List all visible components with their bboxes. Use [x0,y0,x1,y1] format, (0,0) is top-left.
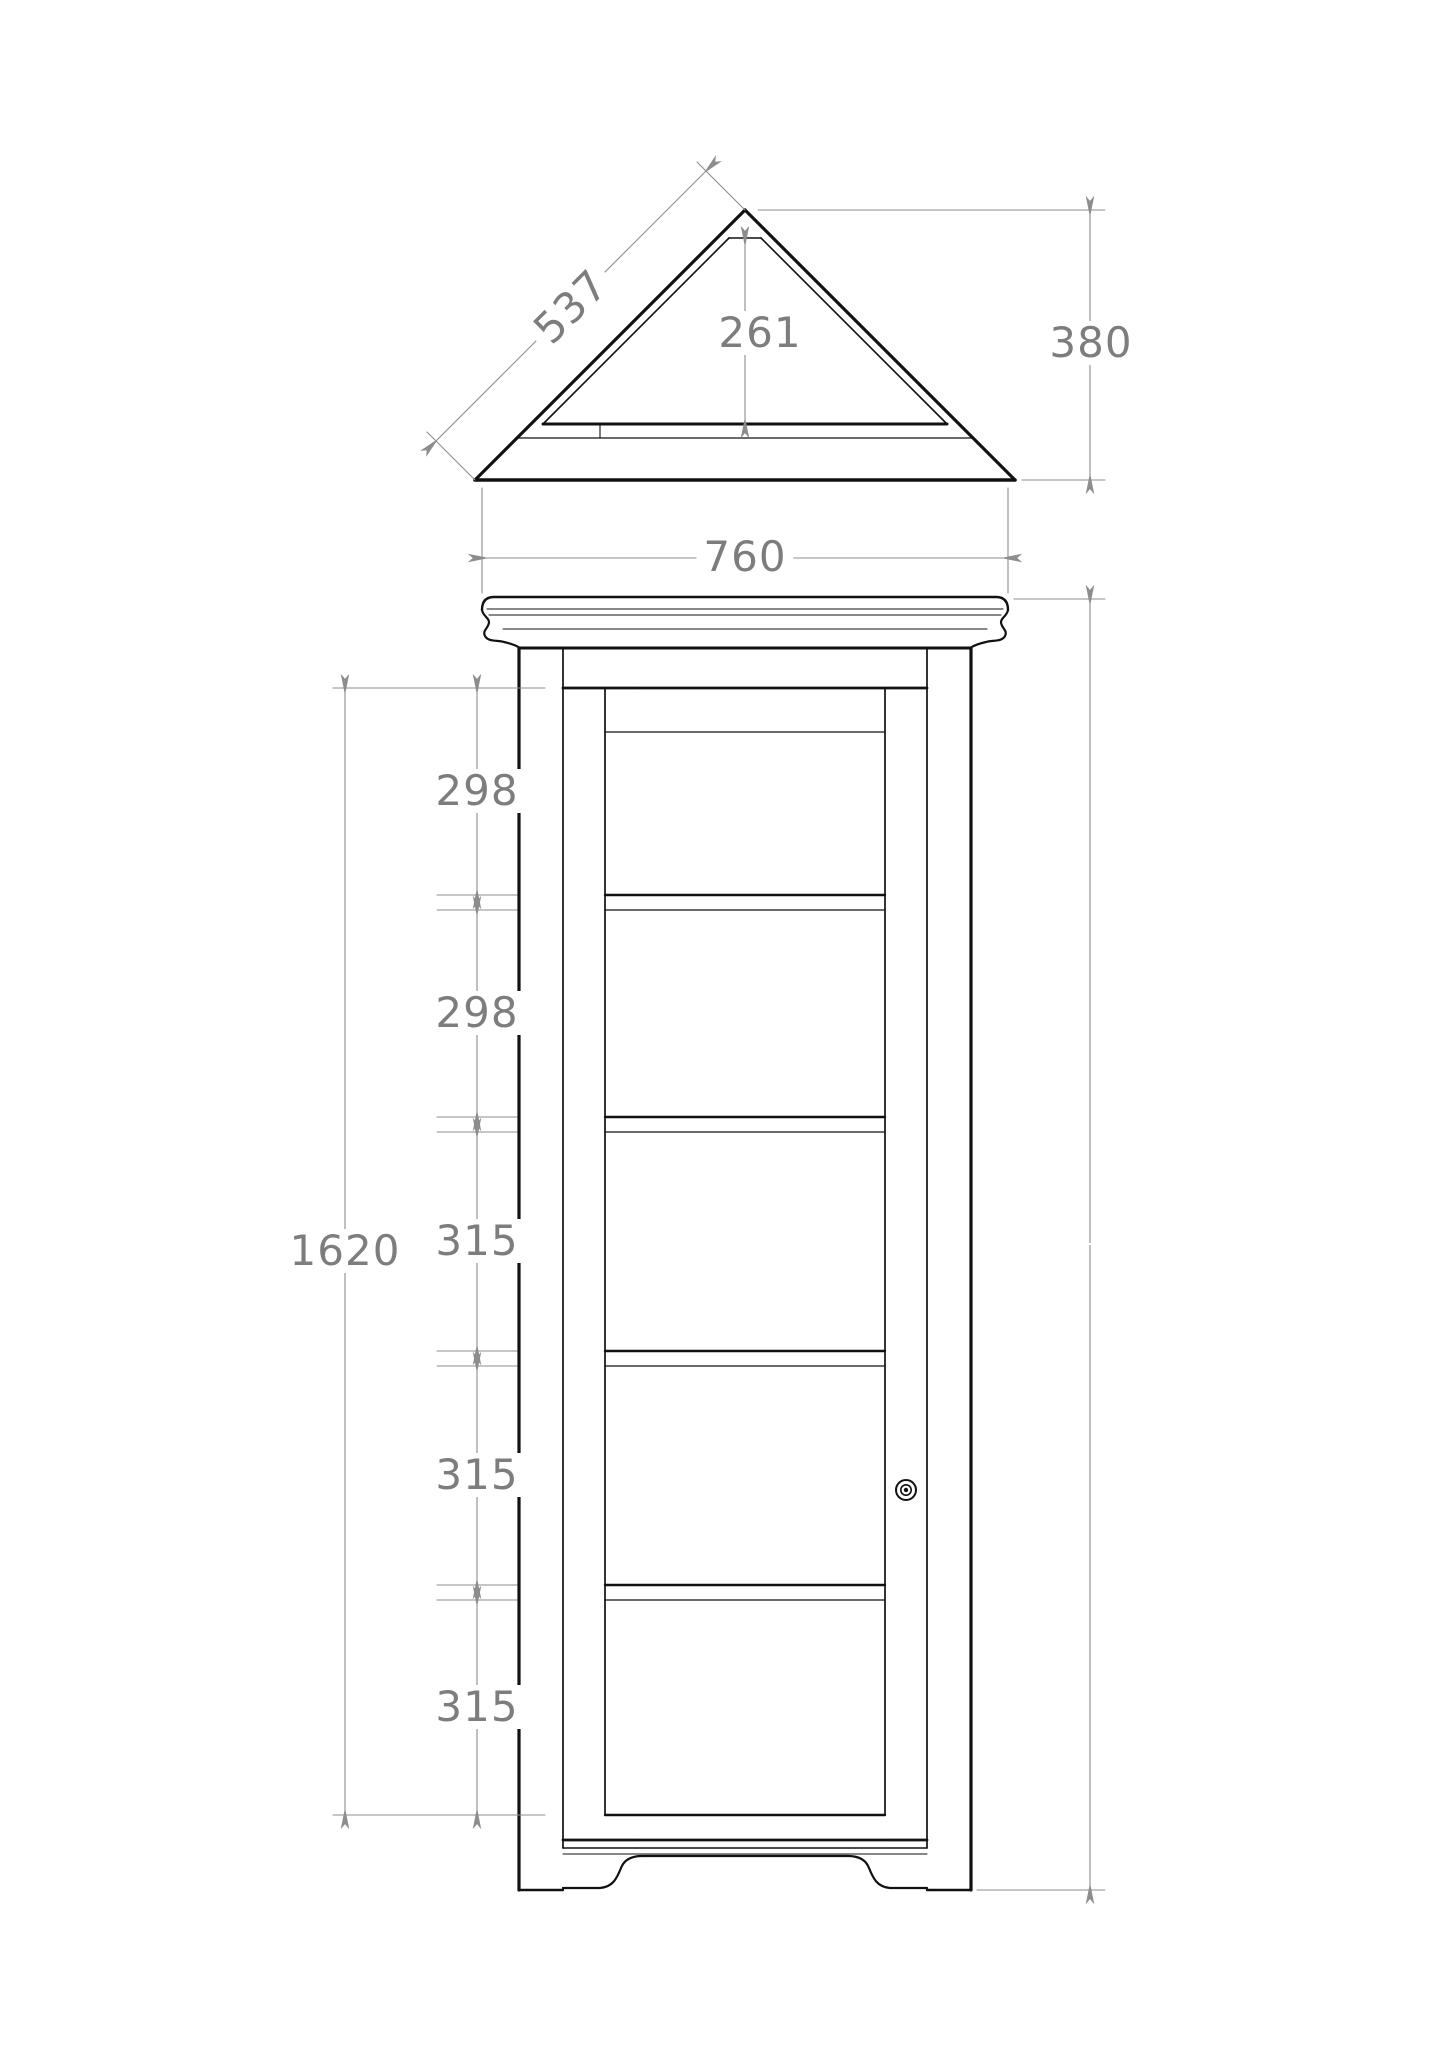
drawing-sheet: 537 261 380 760 298 298 315 315 315 1620 [0,0,1448,2048]
dim-label-shelf-spacing-4: 315 [428,1453,525,1497]
plan-view [427,162,1105,593]
shelf-4 [605,1585,885,1600]
dim-label-shelf-spacing-3: 315 [428,1219,525,1263]
shelf-2 [605,1117,885,1132]
shelf-1 [605,895,885,910]
dim-label-shelf-spacing-1: 298 [428,769,525,813]
plinth-and-feet [563,1848,927,1888]
dim-label-shelf-spacing-2: 298 [428,991,525,1035]
shelf-3 [605,1351,885,1366]
cornice [482,597,1008,648]
dim-label-inner-depth: 261 [711,311,808,355]
glazed-door [563,688,927,1840]
dim-label-front-width: 760 [696,535,793,579]
dim-label-overall-depth: 380 [1042,321,1139,365]
shelves [605,895,885,1600]
door-knob [896,1480,916,1500]
dim-label-shelf-spacing-5: 315 [428,1685,525,1729]
dim-label-overall-height [1083,1243,1097,1245]
dim-label-door-opening-height: 1620 [283,1229,408,1273]
carcass [519,648,971,1890]
